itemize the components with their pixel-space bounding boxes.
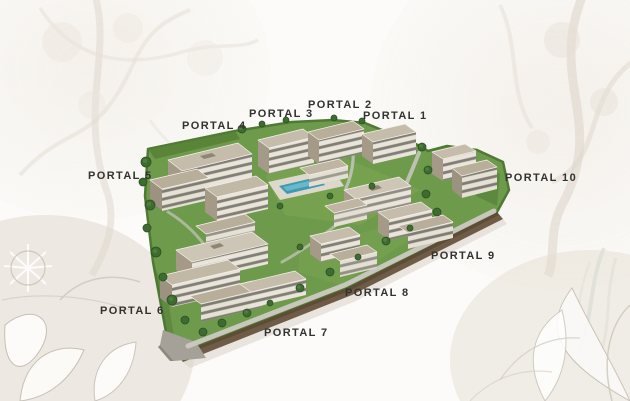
portal-10-label: PORTAL 10 xyxy=(505,172,577,184)
portal-7-label: PORTAL 7 xyxy=(264,327,329,339)
portal-1-label: PORTAL 1 xyxy=(363,110,428,122)
decor-bottom-right-flora xyxy=(450,250,630,401)
portal-5-label: PORTAL 5 xyxy=(88,170,153,182)
portal-2-label: PORTAL 2 xyxy=(308,99,373,111)
portal-4-label: PORTAL 4 xyxy=(182,120,247,132)
portal-9-label: PORTAL 9 xyxy=(431,250,496,262)
site-illustration xyxy=(0,0,630,401)
portal-6-label: PORTAL 6 xyxy=(100,305,165,317)
portal-8-label: PORTAL 8 xyxy=(345,287,410,299)
portal-3-label: PORTAL 3 xyxy=(249,108,314,120)
masterplan-canvas: PORTAL 1 PORTAL 2 PORTAL 3 PORTAL 4 PORT… xyxy=(0,0,630,401)
